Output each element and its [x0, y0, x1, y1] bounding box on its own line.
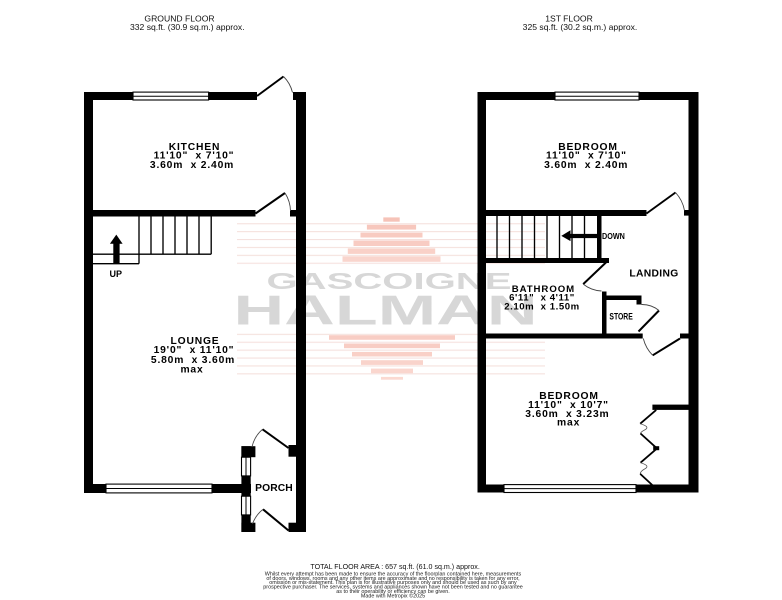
svg-text:max: max [557, 417, 580, 428]
svg-text:2.10m x 1.50m: 2.10m x 1.50m [504, 302, 579, 313]
svg-text:UP: UP [110, 269, 123, 279]
svg-text:STORE: STORE [609, 312, 633, 322]
svg-text:Made with Metropix ©2025: Made with Metropix ©2025 [361, 593, 425, 600]
svg-text:3.60m x 2.40m: 3.60m x 2.40m [544, 160, 628, 171]
svg-text:PORCH: PORCH [255, 483, 293, 494]
svg-text:LANDING: LANDING [629, 269, 678, 280]
svg-text:325 sq.ft. (30.2 sq.m.) approx: 325 sq.ft. (30.2 sq.m.) approx. [523, 22, 638, 32]
svg-text:DOWN: DOWN [602, 231, 625, 241]
svg-text:332 sq.ft. (30.9 sq.m.) approx: 332 sq.ft. (30.9 sq.m.) approx. [130, 22, 245, 32]
svg-text:HALMAN: HALMAN [234, 287, 538, 333]
svg-text:max: max [180, 365, 203, 376]
svg-text:3.60m x 2.40m: 3.60m x 2.40m [150, 160, 234, 171]
svg-text:TOTAL FLOOR AREA : 657 sq.ft.: TOTAL FLOOR AREA : 657 sq.ft. (61.0 sq.m… [310, 563, 479, 571]
